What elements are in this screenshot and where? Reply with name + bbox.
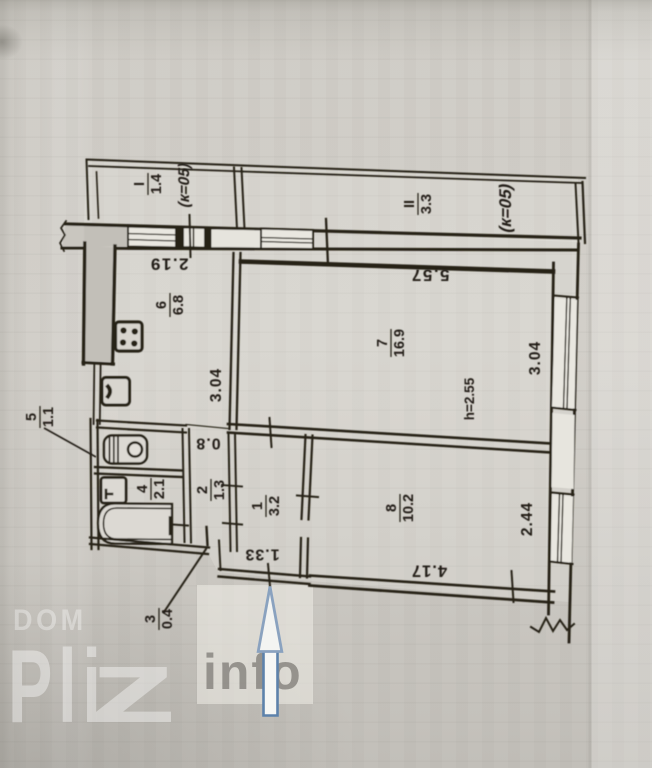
svg-text:3.04: 3.04: [527, 341, 544, 375]
svg-text:6: 6: [154, 301, 170, 309]
svg-text:II: II: [402, 200, 418, 208]
svg-text:1.4: 1.4: [149, 174, 165, 194]
svg-text:3.04: 3.04: [208, 368, 225, 402]
svg-text:8: 8: [384, 504, 400, 512]
svg-text:10.2: 10.2: [401, 494, 417, 522]
svg-text:2: 2: [195, 486, 211, 494]
svg-text:z: z: [89, 628, 177, 744]
svg-text:4.17: 4.17: [411, 562, 447, 580]
svg-text:3.3: 3.3: [419, 194, 435, 214]
svg-text:(к=05): (к=05): [176, 161, 193, 209]
svg-text:4: 4: [135, 485, 151, 493]
svg-text:0.4: 0.4: [160, 609, 176, 629]
svg-text:16.9: 16.9: [392, 329, 408, 357]
svg-text:h=2.55: h=2.55: [462, 377, 477, 420]
svg-text:5: 5: [24, 413, 40, 421]
svg-text:7: 7: [375, 339, 391, 347]
svg-text:3.2: 3.2: [267, 496, 283, 516]
svg-text:1.33: 1.33: [244, 546, 279, 563]
svg-text:2.44: 2.44: [519, 502, 536, 536]
svg-text:info: info: [203, 644, 303, 700]
svg-text:2.1: 2.1: [152, 479, 168, 499]
svg-text:1.1: 1.1: [41, 407, 57, 427]
svg-text:3: 3: [143, 615, 159, 623]
svg-text:5.57: 5.57: [410, 266, 449, 285]
svg-text:(к=05): (к=05): [495, 181, 515, 234]
svg-text:0.8: 0.8: [195, 435, 220, 452]
svg-text:6.8: 6.8: [171, 295, 187, 315]
svg-text:I: I: [132, 182, 148, 186]
svg-text:1.3: 1.3: [212, 480, 228, 500]
svg-text:2.19: 2.19: [149, 255, 188, 274]
svg-text:1: 1: [250, 502, 266, 510]
